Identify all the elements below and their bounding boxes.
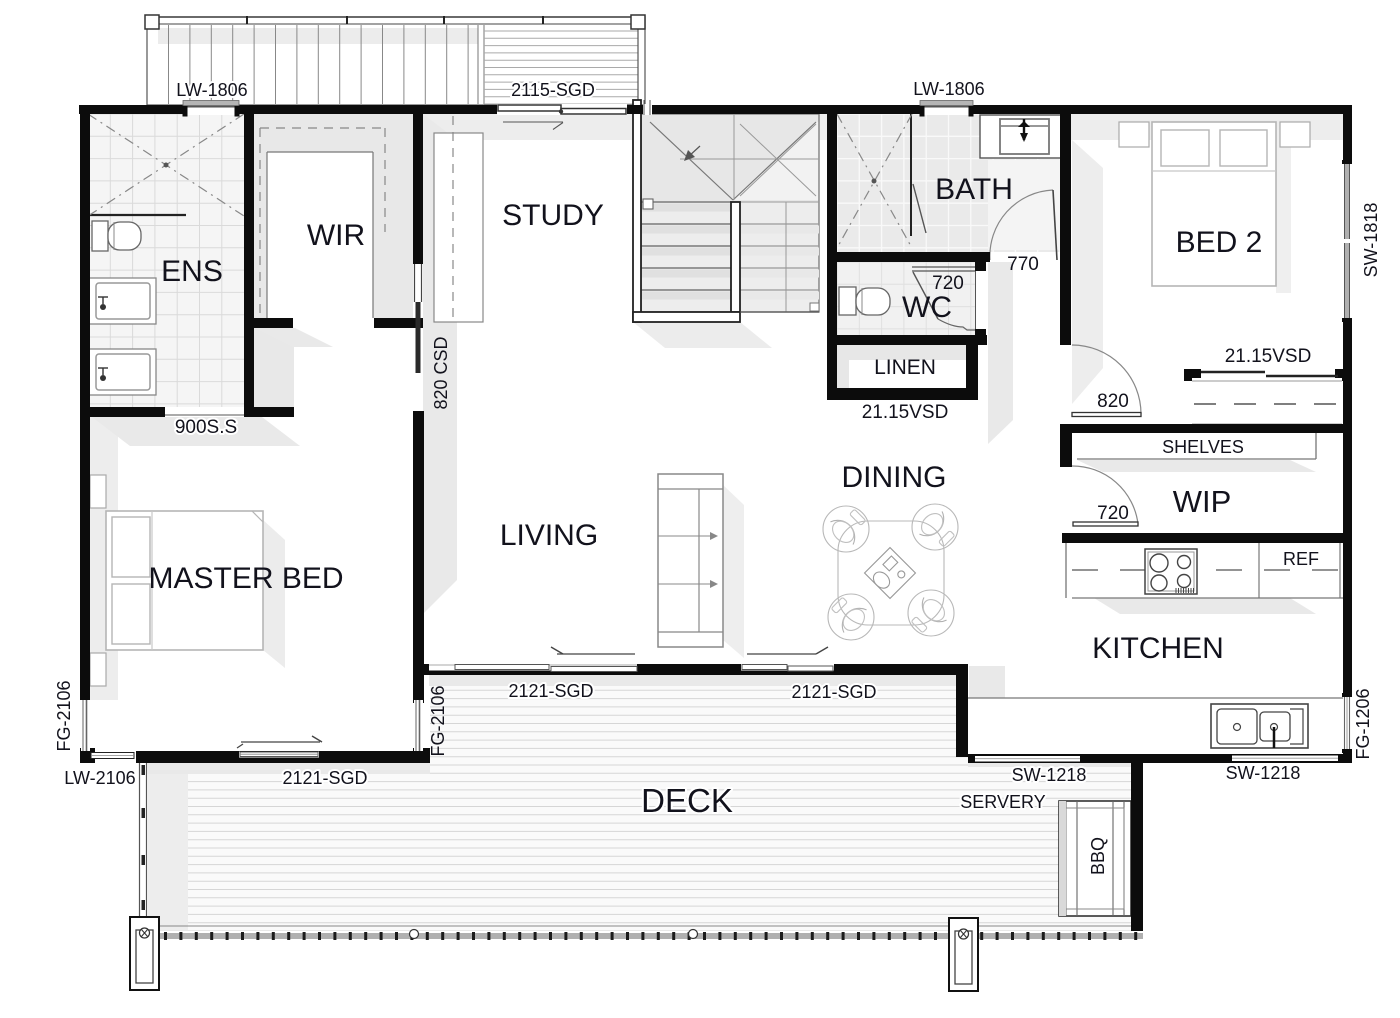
- svg-text:LW-2106: LW-2106: [64, 768, 135, 788]
- svg-text:FG-2106: FG-2106: [428, 685, 448, 756]
- svg-text:WIR: WIR: [307, 219, 365, 252]
- svg-text:FG-1206: FG-1206: [1353, 688, 1373, 759]
- svg-text:LINEN: LINEN: [874, 356, 936, 379]
- svg-text:SW-1818: SW-1818: [1361, 203, 1381, 278]
- svg-text:BBQ: BBQ: [1088, 837, 1108, 875]
- svg-text:LIVING: LIVING: [500, 519, 598, 552]
- svg-text:WIP: WIP: [1173, 484, 1232, 519]
- svg-text:SW-1218: SW-1218: [1012, 765, 1087, 785]
- svg-text:LW-1806: LW-1806: [913, 79, 984, 99]
- svg-text:720: 720: [1097, 503, 1129, 524]
- svg-text:BATH: BATH: [935, 173, 1013, 206]
- svg-text:REF: REF: [1283, 549, 1319, 569]
- svg-text:FG-2106: FG-2106: [54, 680, 74, 751]
- svg-text:WC: WC: [902, 291, 952, 324]
- svg-text:820: 820: [1097, 391, 1129, 412]
- svg-text:720: 720: [932, 273, 964, 294]
- svg-text:2121-SGD: 2121-SGD: [508, 681, 593, 701]
- svg-text:21.15VSD: 21.15VSD: [1225, 346, 1312, 367]
- svg-text:STUDY: STUDY: [502, 199, 604, 232]
- svg-text:MASTER BED: MASTER BED: [148, 562, 343, 595]
- svg-text:900S.S: 900S.S: [175, 417, 237, 438]
- svg-text:SERVERY: SERVERY: [960, 792, 1045, 812]
- svg-text:DECK: DECK: [641, 782, 733, 819]
- svg-text:21.15VSD: 21.15VSD: [862, 402, 949, 423]
- svg-text:2115-SGD: 2115-SGD: [511, 80, 595, 100]
- svg-text:SW-1218: SW-1218: [1226, 763, 1301, 783]
- svg-text:770: 770: [1007, 254, 1039, 275]
- svg-text:ENS: ENS: [161, 255, 223, 288]
- svg-text:SHELVES: SHELVES: [1162, 437, 1244, 457]
- svg-text:LW-1806: LW-1806: [176, 80, 247, 100]
- svg-text:2121-SGD: 2121-SGD: [791, 682, 876, 702]
- svg-text:820 CSD: 820 CSD: [431, 336, 451, 409]
- svg-text:BED 2: BED 2: [1176, 226, 1263, 259]
- svg-text:2121-SGD: 2121-SGD: [282, 768, 367, 788]
- svg-text:DINING: DINING: [842, 461, 947, 494]
- svg-text:KITCHEN: KITCHEN: [1092, 632, 1224, 665]
